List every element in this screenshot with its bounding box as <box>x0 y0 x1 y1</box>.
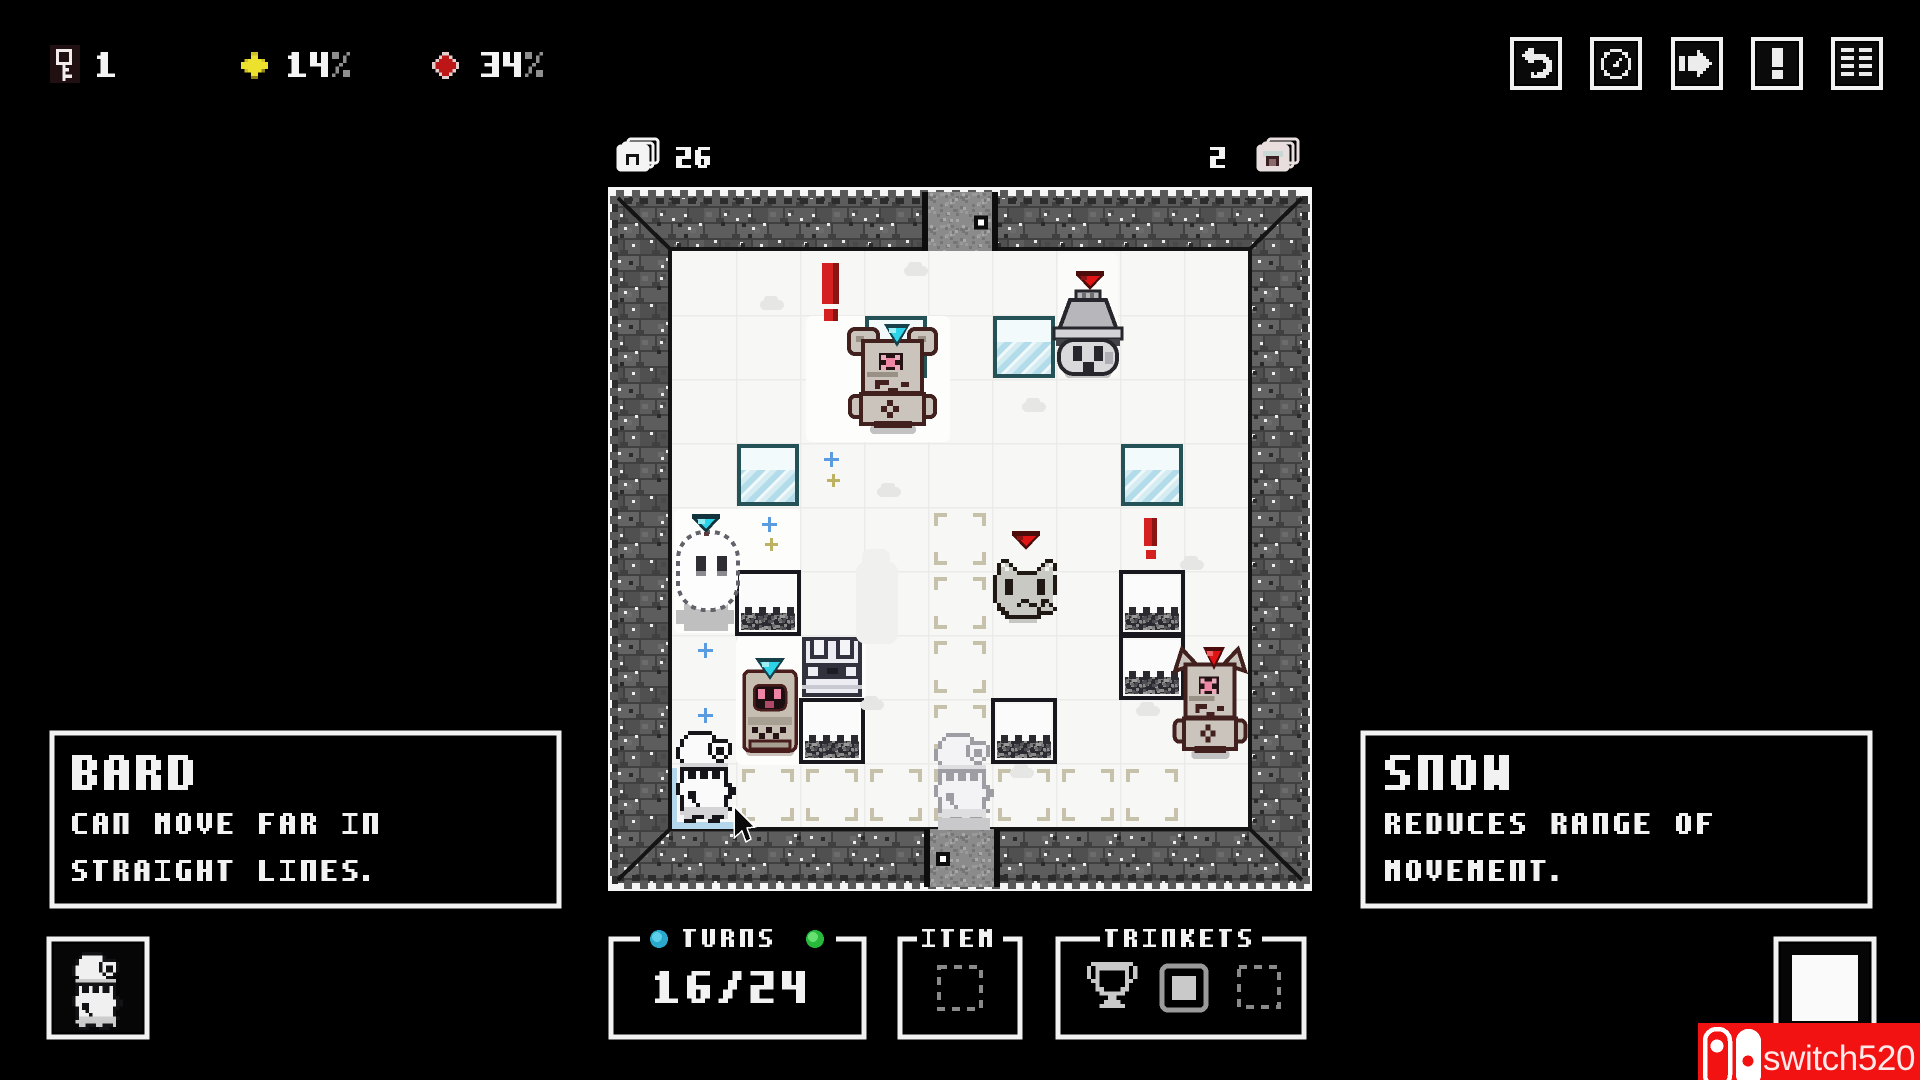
svg-text:switch520: switch520 <box>1763 1039 1915 1078</box>
